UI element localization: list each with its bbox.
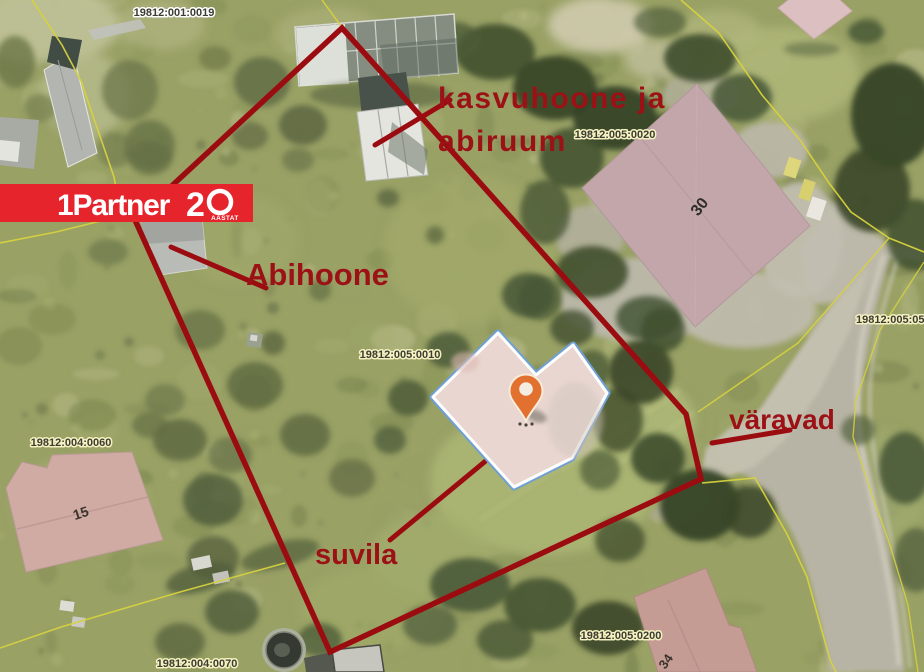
svg-text:Abihoone: Abihoone [246, 257, 389, 292]
svg-text:19812:005:05: 19812:005:05 [856, 314, 924, 326]
svg-text:19812:005:0020: 19812:005:0020 [575, 129, 656, 141]
svg-text:19812:005:0200: 19812:005:0200 [581, 630, 662, 642]
svg-text:1Partner: 1Partner [57, 189, 171, 222]
svg-text:AASTAT: AASTAT [211, 215, 239, 222]
svg-text:19812:001:0019: 19812:001:0019 [134, 7, 215, 19]
svg-text:kasvuhoone ja: kasvuhoone ja [438, 82, 666, 115]
svg-text:19812:004:0070: 19812:004:0070 [157, 658, 238, 670]
svg-text:suvila: suvila [315, 539, 398, 571]
svg-text:väravad: väravad [729, 404, 835, 435]
svg-text:abiruum: abiruum [438, 125, 567, 158]
svg-text:19812:005:0010: 19812:005:0010 [360, 349, 441, 361]
svg-text:2: 2 [186, 186, 205, 224]
svg-text:19812:004:0060: 19812:004:0060 [31, 437, 112, 449]
